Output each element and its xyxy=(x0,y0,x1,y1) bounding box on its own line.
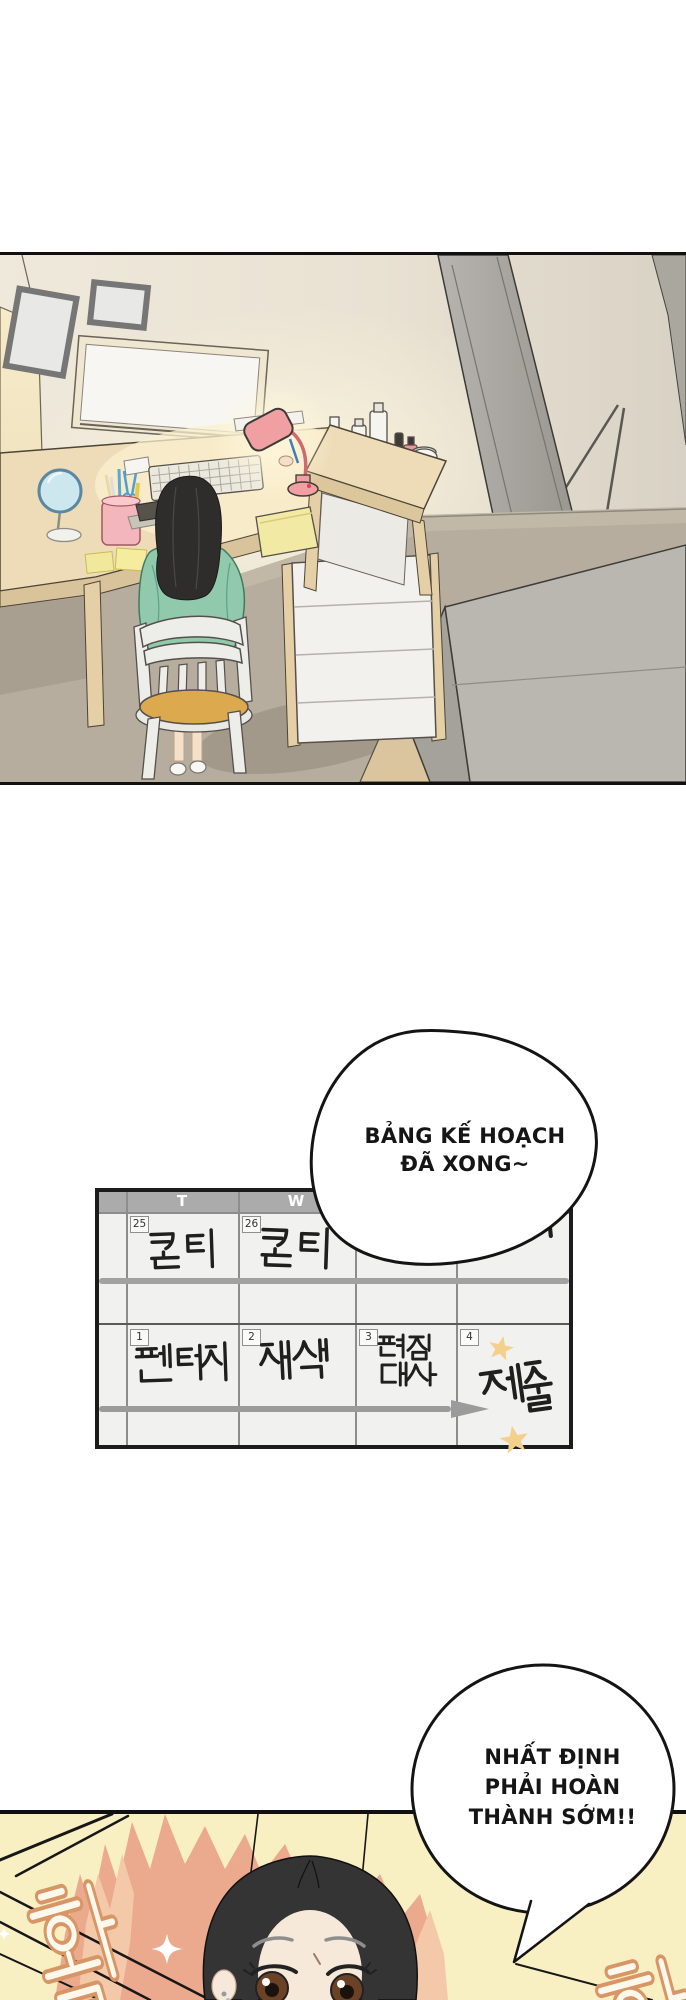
star-icon xyxy=(479,1410,515,1446)
desk-lamp xyxy=(210,378,334,502)
timeline-arrow xyxy=(99,1396,499,1422)
room-scene-panel xyxy=(0,252,686,785)
task-edit-line1 xyxy=(377,1334,433,1360)
calendar-day-header: T xyxy=(177,1192,187,1210)
timeline-marker xyxy=(99,1278,569,1284)
calendar-date: 25 xyxy=(130,1216,149,1233)
task-pen-touch xyxy=(134,1340,227,1383)
calendar-date: 3 xyxy=(359,1329,378,1346)
comic-page: T W 25 26 1 2 3 4 xyxy=(0,0,686,2000)
speech-bubble-plan-text: BẢNG KẾ HOẠCH ĐÃ XONG~ xyxy=(330,1122,600,1178)
star-icon xyxy=(474,1316,506,1348)
task-coloring xyxy=(258,1336,334,1382)
task-konti-1 xyxy=(147,1227,216,1269)
task-submit xyxy=(477,1355,560,1421)
task-edit-line2 xyxy=(379,1362,437,1388)
calendar-date: 26 xyxy=(242,1216,261,1233)
speech-bubble-resolve-text: NHẤT ĐỊNH PHẢI HOÀN THÀNH SỚM!! xyxy=(430,1742,675,1832)
girl-hair xyxy=(156,476,222,600)
